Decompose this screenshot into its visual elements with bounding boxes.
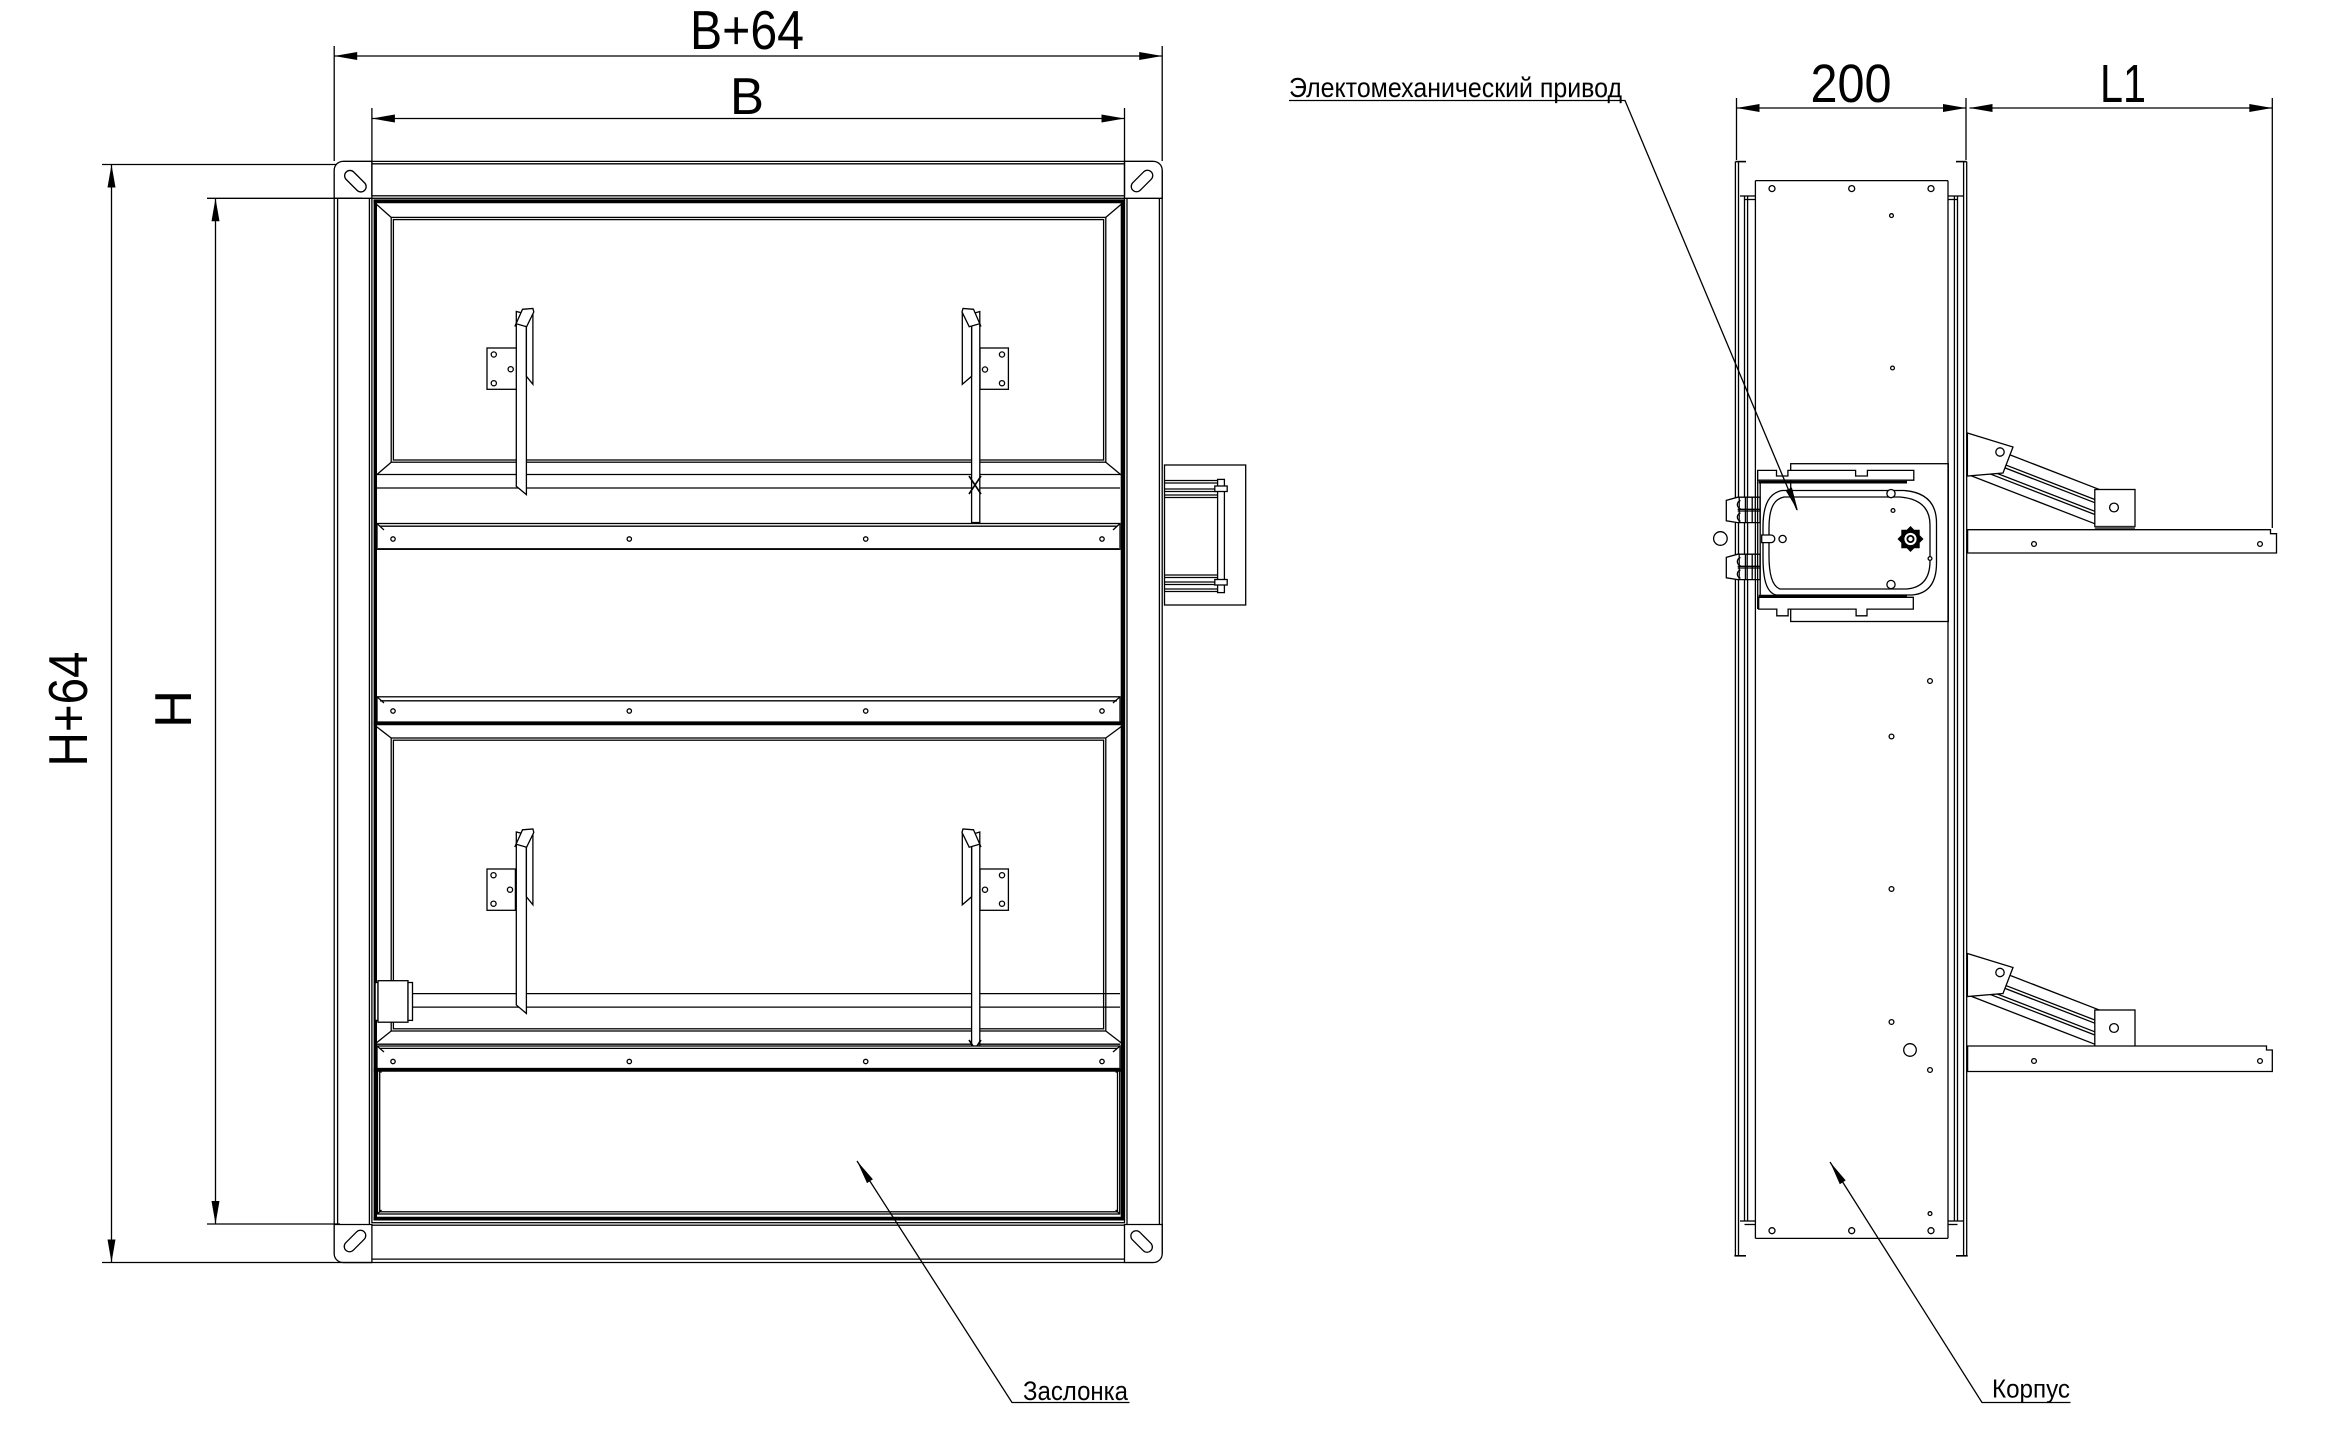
svg-text:200: 200 — [1810, 54, 1891, 114]
svg-text:Электомеханический привод: Электомеханический привод — [1289, 72, 1622, 103]
svg-text:B: B — [730, 68, 764, 126]
svg-text:Заслонка: Заслонка — [1023, 1376, 1129, 1406]
svg-text:B+64: B+64 — [690, 0, 804, 61]
svg-text:L1: L1 — [2100, 54, 2146, 114]
svg-text:H+64: H+64 — [37, 652, 99, 767]
svg-text:Корпус: Корпус — [1992, 1374, 2070, 1404]
svg-text:H: H — [145, 690, 203, 728]
